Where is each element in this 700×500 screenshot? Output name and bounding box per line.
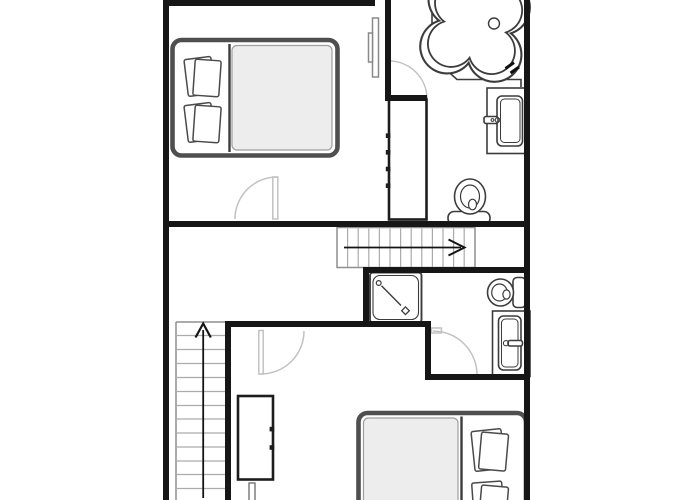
pillow xyxy=(193,59,221,97)
pillow xyxy=(478,432,508,471)
wall-right xyxy=(524,0,530,500)
pillow xyxy=(478,485,508,500)
knob xyxy=(386,133,391,138)
floor-plan-image xyxy=(0,0,700,500)
toilet-drain xyxy=(503,290,510,299)
wall-bathroom2-corner xyxy=(425,321,431,380)
bed-blanket xyxy=(232,46,332,151)
wardrobe-upper xyxy=(386,100,427,220)
bed-upper xyxy=(173,40,338,156)
wall-under-stairs xyxy=(363,267,530,273)
wardrobe-body xyxy=(238,396,273,480)
shower-stall xyxy=(370,273,422,323)
pillow xyxy=(193,105,221,143)
knob xyxy=(270,445,275,450)
faucet-icon xyxy=(508,341,523,347)
bed-blanket xyxy=(364,418,459,500)
cabinet-leaf xyxy=(249,483,255,500)
knob xyxy=(386,167,391,172)
staircase-middle xyxy=(337,228,475,268)
toilet-tank xyxy=(513,278,526,308)
wall-bathroom1-left xyxy=(385,0,391,100)
toilet-drain xyxy=(469,199,477,210)
door-leaf xyxy=(259,331,263,375)
door-leaf xyxy=(273,177,278,219)
wall-stairs-right xyxy=(225,321,231,500)
bed-lower xyxy=(359,413,527,500)
wall-bedroom2-top xyxy=(231,321,431,327)
wardrobe-body xyxy=(389,100,427,220)
sliding-panel xyxy=(369,33,373,62)
knob xyxy=(386,150,391,155)
wall-shower-left xyxy=(363,267,369,327)
knob xyxy=(386,183,391,188)
wall-bathroom1-stub xyxy=(385,95,427,101)
wall-bathroom2-bottom xyxy=(425,374,530,380)
wall-top xyxy=(163,0,375,6)
toilet-bathroom2 xyxy=(488,278,526,308)
knob xyxy=(270,427,275,432)
pillows xyxy=(471,429,509,500)
floor-plan-canvas xyxy=(0,0,700,500)
wall-mid-horizontal xyxy=(163,221,530,227)
shower-inner xyxy=(373,276,419,320)
wall-left xyxy=(163,0,169,500)
basin-inner xyxy=(501,99,521,143)
sink-bathroom1 xyxy=(484,88,527,154)
sliding-panel xyxy=(373,18,379,77)
